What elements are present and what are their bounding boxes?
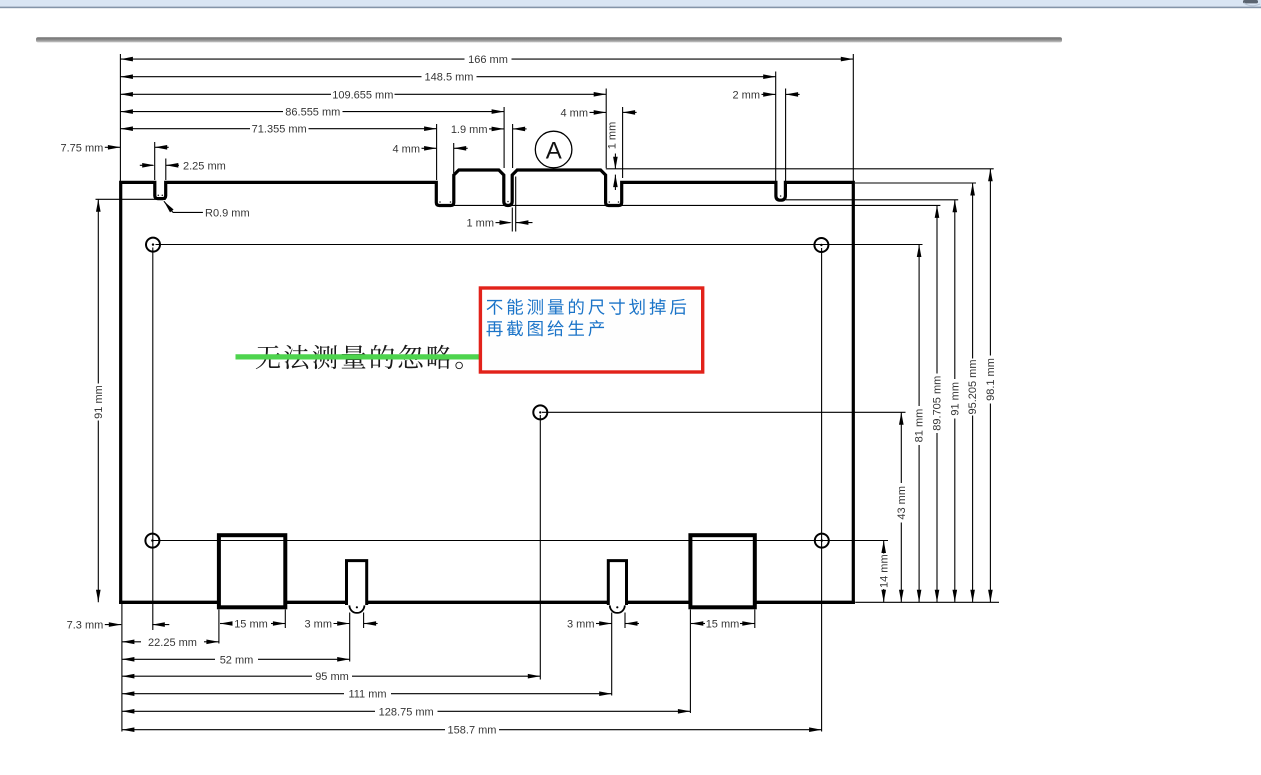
svg-text:98.1 mm: 98.1 mm bbox=[985, 358, 997, 401]
svg-text:43 mm: 43 mm bbox=[896, 486, 908, 520]
svg-text:A: A bbox=[546, 138, 562, 165]
svg-text:4 mm: 4 mm bbox=[393, 143, 421, 155]
svg-text:R0.9 mm: R0.9 mm bbox=[205, 207, 250, 219]
svg-text:14 mm: 14 mm bbox=[878, 554, 890, 588]
svg-text:3 mm: 3 mm bbox=[305, 619, 333, 631]
svg-text:81 mm: 81 mm bbox=[914, 409, 926, 443]
svg-text:52 mm: 52 mm bbox=[220, 654, 254, 666]
svg-text:2.25 mm: 2.25 mm bbox=[183, 160, 226, 172]
svg-text:7.75 mm: 7.75 mm bbox=[61, 142, 104, 154]
svg-text:166 mm: 166 mm bbox=[468, 54, 508, 66]
svg-text:71.355 mm: 71.355 mm bbox=[252, 124, 307, 136]
svg-text:4 mm: 4 mm bbox=[561, 107, 589, 119]
svg-text:15 mm: 15 mm bbox=[234, 619, 268, 631]
svg-text:2 mm: 2 mm bbox=[733, 89, 761, 101]
svg-text:91 mm: 91 mm bbox=[93, 385, 105, 419]
svg-text:128.75 mm: 128.75 mm bbox=[379, 706, 434, 718]
svg-text:22.25 mm: 22.25 mm bbox=[148, 637, 197, 649]
svg-text:91 mm: 91 mm bbox=[949, 382, 961, 416]
svg-text:109.655 mm: 109.655 mm bbox=[332, 89, 393, 101]
svg-text:95 mm: 95 mm bbox=[315, 671, 349, 683]
svg-text:1 mm: 1 mm bbox=[467, 218, 495, 230]
svg-text:111 mm: 111 mm bbox=[348, 689, 386, 701]
svg-text:89.705 mm: 89.705 mm bbox=[932, 376, 944, 431]
svg-text:15 mm: 15 mm bbox=[706, 619, 740, 631]
svg-text:7.3 mm: 7.3 mm bbox=[67, 620, 104, 632]
svg-text:95.205 mm: 95.205 mm bbox=[967, 359, 979, 414]
svg-text:148.5 mm: 148.5 mm bbox=[425, 72, 474, 84]
svg-text:1 mm: 1 mm bbox=[606, 122, 618, 150]
svg-text:1.9 mm: 1.9 mm bbox=[451, 124, 488, 136]
svg-text:86.555 mm: 86.555 mm bbox=[285, 107, 340, 119]
svg-text:158.7 mm: 158.7 mm bbox=[448, 725, 497, 737]
svg-text:3 mm: 3 mm bbox=[567, 619, 595, 631]
